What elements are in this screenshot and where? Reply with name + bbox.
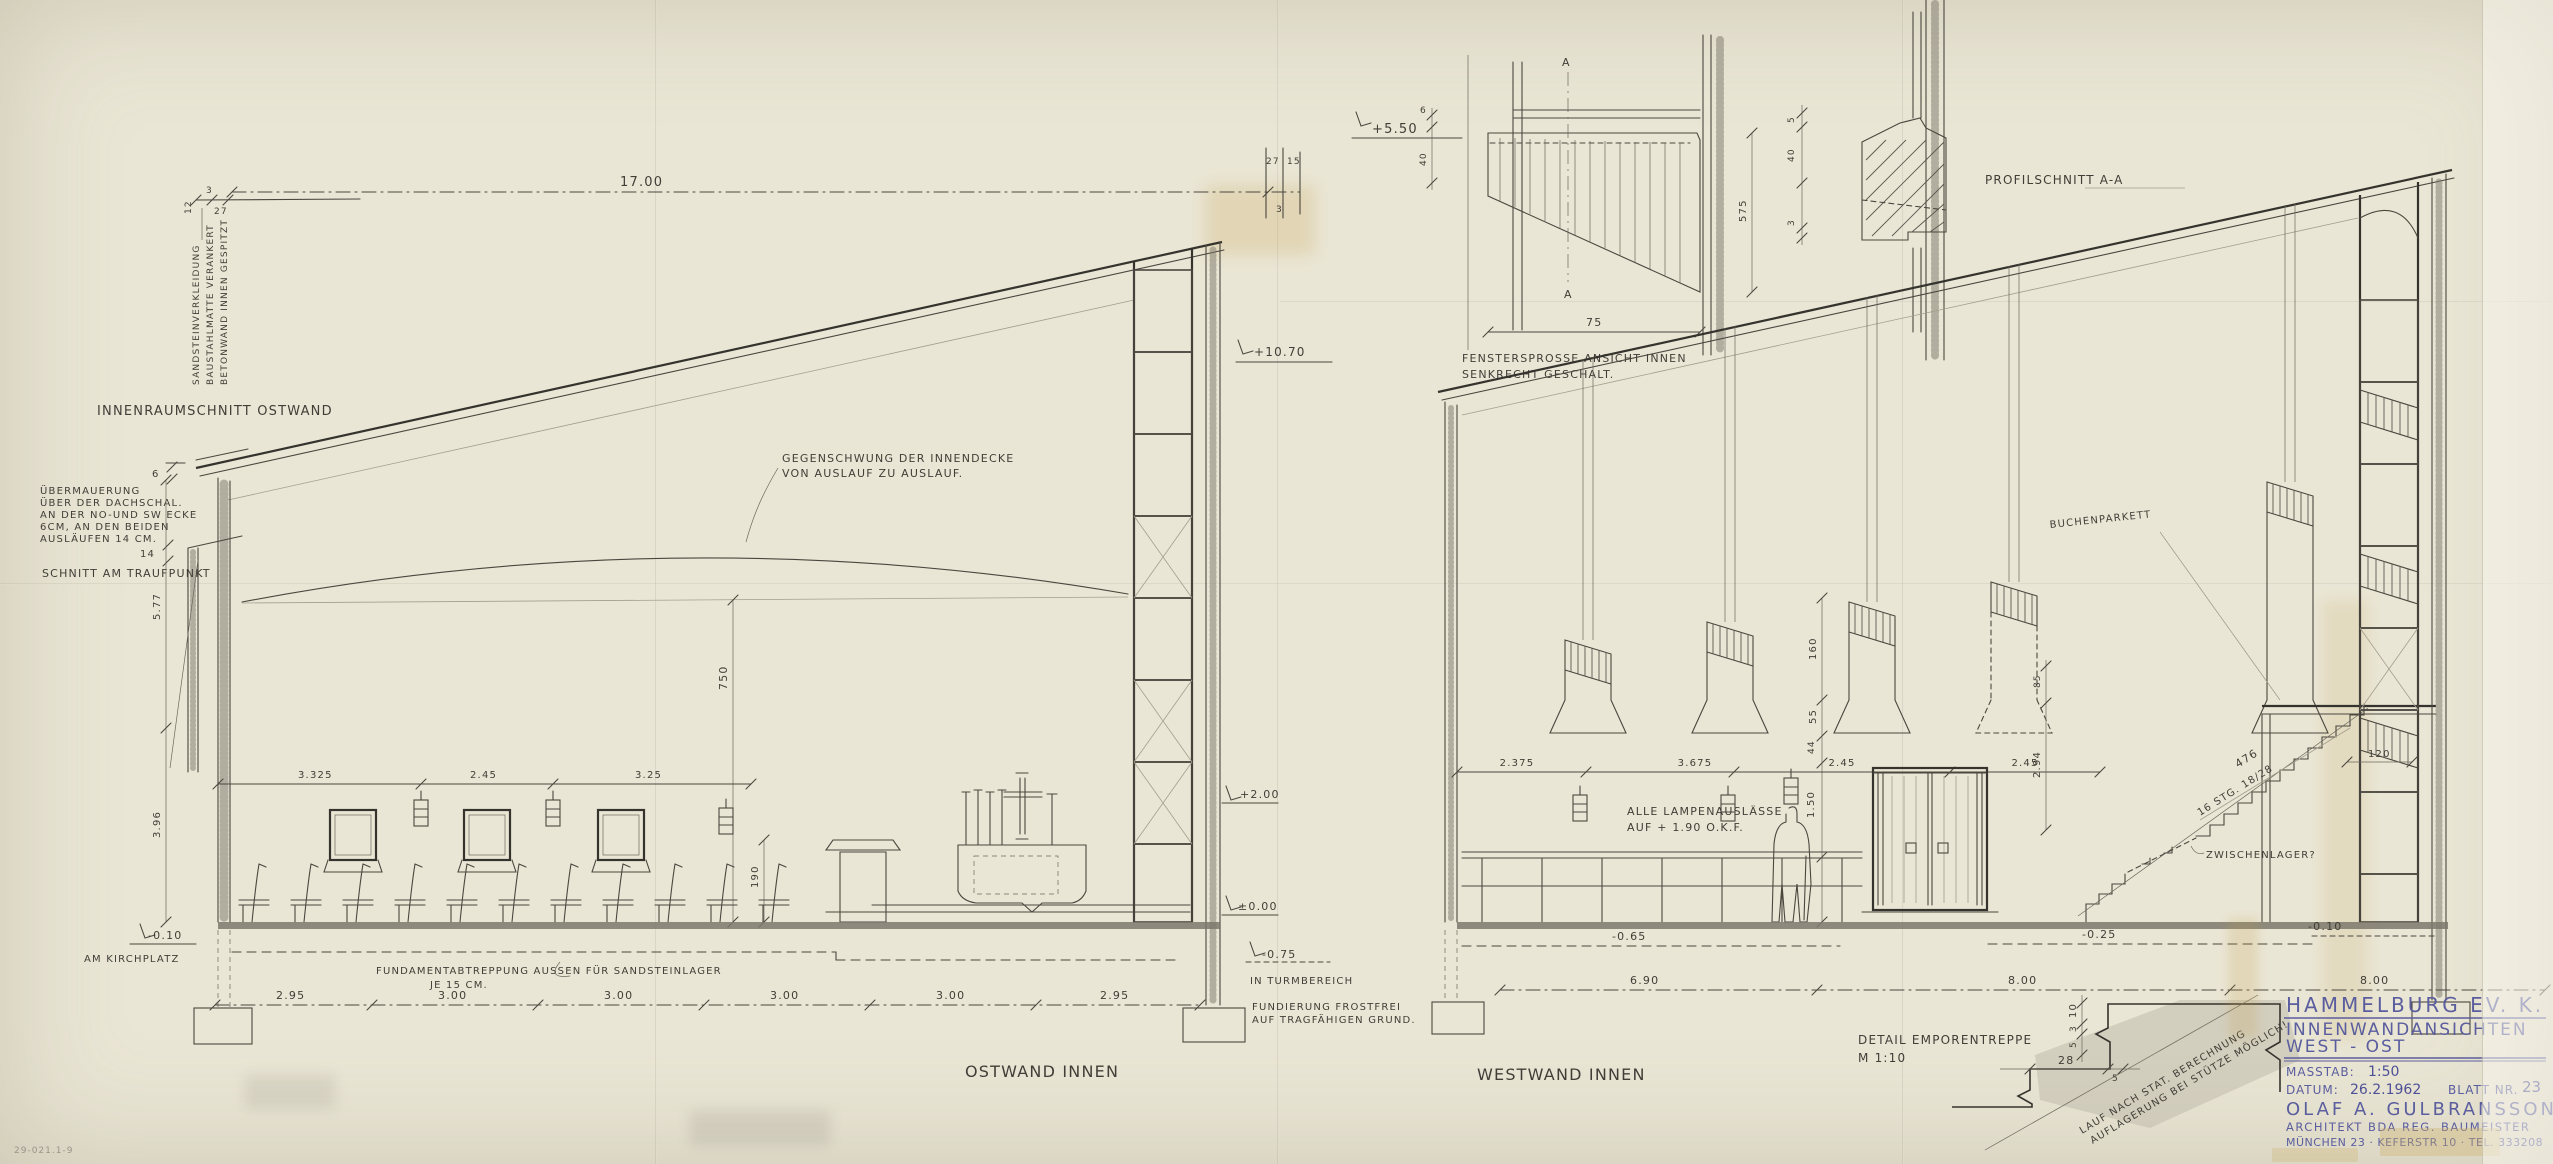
dim-label: 3.00 [438,989,467,1002]
sheet-subtitle: WEST - OST [2286,1037,2406,1057]
west-window [2252,203,2328,733]
dim-label: 5 [2069,1041,2079,1048]
dim-label: 15 [1287,157,1301,167]
architect-credentials: ARCHITEKT BDA REG. BAUMEISTER [2286,1120,2530,1134]
dim-label: 3.96 [152,811,163,838]
detail-caption: M 1:10 [1858,1051,1906,1065]
dim-label: 2.95 [276,989,305,1002]
note-text: VON AUSLAUF ZU AUSLAUF. [782,467,963,480]
drawing-caption: WESTWAND INNEN [1477,1065,1646,1084]
dim-label: 27 [214,207,228,217]
elevation-mark-icon [1356,112,1371,126]
east-window [458,810,516,872]
dim-label: 2.45 [1828,758,1855,769]
door-handle-icon [1938,843,1948,853]
dim-label: 3.00 [936,989,965,1002]
elevation-label: -0.75 [1262,948,1296,961]
drawing-linework: SANDSTEINVERKLEIDUNG BAUSTAHLMATTE VERAN… [0,0,2553,1164]
gallery-floor [2262,706,2436,922]
dim-label: 44 [1807,740,1817,754]
dim-label: 5 [2112,1074,2119,1084]
dim-label: 12 [184,200,194,214]
note-text: BAUSTAHLMATTE VERANKERT [206,224,216,385]
dim-label: 3.00 [604,989,633,1002]
drawing-sheet: SANDSTEINVERKLEIDUNG BAUSTAHLMATTE VERAN… [0,0,2553,1164]
pulpit [826,840,904,922]
lamp-outlet-icon [1573,786,1587,821]
elevation-label: -0.10 [148,929,182,942]
west-elevation-drawing: 160 55 44 1.50 ALLE LAMPENAUSLÄSSE AUF +… [1432,170,2550,1084]
west-window [1976,264,2052,733]
dim-label: 160 [1808,637,1819,660]
lamp-outlet-icon [719,799,733,834]
dim-label: 17.00 [620,175,663,190]
note-text: FUNDAMENTABTREPPUNG AUSSEN FÜR SANDSTEIN… [376,964,722,977]
elevation-label: ±0.00 [1238,900,1278,913]
window-mullion-detail: +5.50 6 40 A A 75 575 5 40 3 FENSTERSPRO… [1352,35,1807,381]
scale-label: MASSTAB: [2286,1065,2355,1079]
east-window [324,810,382,872]
elevation-label: +5.50 [1372,122,1418,137]
dim-label: 476 [2233,746,2261,770]
dim-label: 2.95 [1100,989,1129,1002]
west-window [1834,295,1910,733]
note-text: ÜBERMAUERUNG [40,484,140,497]
elevation-label: +2.00 [1240,788,1280,801]
west-window [1692,326,1768,733]
note-text: ZWISCHENLAGER? [2206,850,2316,861]
east-elevation-drawing: INNENRAUMSCHNITT OSTWAND 17.00 27 15 3 Ü… [40,148,1416,1081]
dim-label: 2.94 [2032,751,2043,778]
dim-label: 3 [206,186,213,196]
note-text: IN TURMBEREICH [1250,976,1353,987]
note-text: BETONWAND INNEN GESPITZT [220,219,230,385]
east-tower-ladder [1134,248,1192,922]
detail-caption: SCHNITT AM TRAUFPUNKT [42,567,211,580]
dim-label: 6.90 [1630,974,1659,987]
section-title: INNENRAUMSCHNITT OSTWAND [97,404,333,419]
date-value: 26.2.1962 [2350,1082,2421,1098]
dim-label: 3 [2069,1025,2079,1032]
dim-label: 3 [1276,205,1283,215]
door-handle-icon [1906,843,1916,853]
note-text: AUF TRAGFÄHIGEN GRUND. [1252,1013,1416,1026]
section-marker: A [1564,288,1573,301]
dim-label: 750 [717,665,730,690]
sheet-number-value: 23 [2522,1078,2541,1096]
dim-label: 3.00 [770,989,799,1002]
note-text: FUNDIERUNG FROSTFREI [1252,1002,1401,1013]
note-text: SANDSTEINVERKLEIDUNG [192,244,202,385]
dim-label: 14 [140,549,155,560]
title-block: HAMMELBURG EV. K. INNENWANDANSICHTEN WES… [2284,993,2553,1149]
profile-section-detail: PROFILSCHNITT A-A [1862,0,2185,360]
architect-address: MÜNCHEN 23 · KEFERSTR 10 · TEL. 333208 [2286,1136,2543,1149]
entrance-door [1862,768,1998,912]
note-text: ÜBER DER DACHSCHAL. [40,496,183,509]
dim-label: 75 [1586,316,1602,329]
dim-label: 6 [152,469,160,480]
elevation-label: -0.65 [1612,930,1646,943]
dim-label: 1.50 [1806,791,1817,818]
dim-label: 8.00 [2008,974,2037,987]
west-tower-ladder [2360,182,2418,922]
dim-label: 6 [1420,106,1427,116]
date-label: DATUM: [2286,1083,2339,1097]
dim-label: 3.25 [635,770,662,781]
detail-caption: DETAIL EMPORENTREPPE [1858,1033,2032,1047]
dim-label: 40 [1419,152,1429,166]
dim-label: 2.375 [1500,758,1535,769]
note-text: 6CM, AN DEN BEIDEN [40,522,170,533]
wall-buildup-note: SANDSTEINVERKLEIDUNG BAUSTAHLMATTE VERAN… [184,186,360,385]
note-text: AN DER NO-UND SW ECKE [40,510,197,521]
stair-detail: DETAIL EMPORENTREPPE M 1:10 10 3 5 28 5 … [1858,995,2300,1150]
drawing-caption: OSTWAND INNEN [965,1062,1119,1081]
altar-cross-icon [1004,773,1042,839]
note-text: ALLE LAMPENAUSLÄSSE [1627,805,1783,818]
dim-label: 575 [1738,199,1749,222]
bench [1462,852,1862,922]
elevation-label: +10.70 [1254,345,1306,359]
dim-label: 5 [1787,116,1797,123]
note-text: AM KIRCHPLATZ [84,954,180,965]
sheet-number-label: BLATT NR. [2448,1083,2518,1097]
archive-number: 29-021.1-9 [14,1146,73,1156]
dim-label: 2.45 [470,770,497,781]
dim-label: 3.325 [298,770,333,781]
elevation-label: -0.25 [2082,928,2116,941]
dim-label: 5.77 [152,593,163,620]
gallery-stair [2078,704,2368,922]
dim-label: 28 [2058,1054,2074,1067]
elevation-mark-icon [1238,340,1253,354]
east-window [592,810,650,872]
note-text: 16 STG. 18/28 [2196,763,2276,818]
scale-value: 1:50 [2368,1064,2399,1080]
elevation-mark-icon [1226,786,1241,800]
section-marker: A [1562,56,1571,69]
project-title: HAMMELBURG EV. K. [2286,993,2544,1017]
detail-caption: PROFILSCHNITT A-A [1985,173,2124,187]
note-text: AUSLÄUFEN 14 CM. [40,532,157,545]
dim-label: 55 [1808,709,1819,724]
dim-label: 27 [1266,157,1280,167]
lamp-outlet-icon [546,791,560,826]
dim-label: 3.675 [1678,758,1713,769]
material-label: BUCHENPARKETT [2049,509,2152,531]
dim-label: 85 [2033,674,2043,688]
note-text: GEGENSCHWUNG DER INNENDECKE [782,452,1014,465]
dim-label: 10 [2068,1003,2079,1018]
dim-label: 40 [1787,148,1797,162]
pew-row [239,864,789,922]
dim-label: 120 [2368,749,2391,760]
elevation-label: -0.10 [2308,920,2342,933]
altar [958,790,1086,912]
architect-name: OLAF A. GULBRANSSON [2286,1099,2553,1120]
lamp-outlet-icon [414,791,428,826]
west-window [1550,357,1626,733]
dim-label: 190 [750,865,761,888]
dim-label: 8.00 [2360,974,2389,987]
note-text: AUF + 1.90 O.K.F. [1627,821,1744,834]
dim-label: 3 [1787,219,1797,226]
